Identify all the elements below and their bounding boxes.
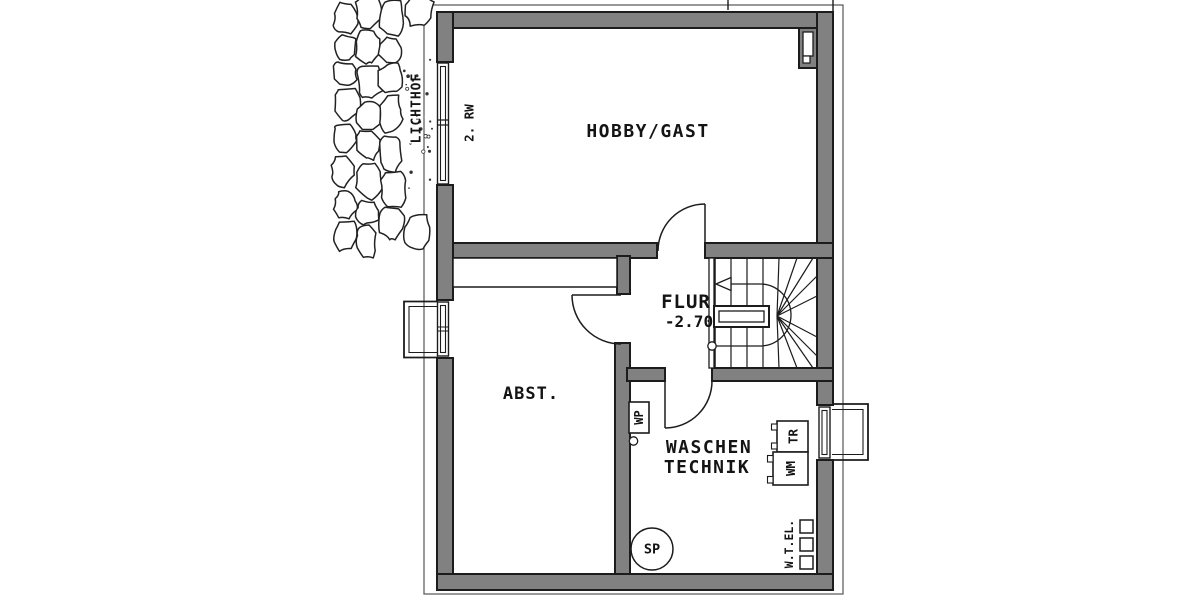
wall-stub-flur [617, 256, 630, 294]
utility-box [800, 556, 813, 569]
window-west [438, 302, 449, 356]
rubble-stone [334, 221, 357, 251]
room-label-abstellraum: ABST. [503, 384, 559, 404]
utility-connections: W.T.EL. [782, 520, 813, 569]
door-swing-arc [665, 381, 712, 428]
window-lichthof [438, 63, 449, 184]
rubble-stone [334, 124, 357, 153]
gravel-dot [431, 128, 433, 130]
rubble-stone [381, 171, 406, 207]
floor-plan-page: WP TR WM SP W.T.EL. HOBBY/GAST FLUR -2. [0, 0, 1200, 600]
staircase [708, 258, 817, 368]
chimney-flue [803, 32, 813, 56]
wall-waschen-north-east [712, 368, 833, 381]
rubble-stone [405, 0, 434, 26]
gravel-dot [426, 62, 430, 66]
wall-west-lower [437, 358, 453, 590]
rubble-stone [378, 37, 401, 63]
door-swing-arc [572, 295, 621, 344]
gravel-dot [425, 178, 428, 181]
gravel-dot [403, 70, 406, 73]
rubble-stone [333, 62, 357, 85]
gravel-dot [405, 84, 407, 86]
wall-west-middle [437, 185, 453, 300]
gravel-dot [422, 150, 425, 153]
rubble-stone [356, 30, 381, 64]
gravel-dot [427, 160, 430, 163]
exterior-walls [437, 12, 833, 590]
dryer: TR [772, 421, 809, 452]
gravel-dot [409, 171, 412, 174]
floor-plan-drawing: WP TR WM SP W.T.EL. HOBBY/GAST FLUR -2. [0, 0, 1200, 600]
gravel-dot [429, 178, 431, 180]
utility-connections-label: W.T.EL. [782, 520, 796, 568]
room-level-flur: -2.70 [665, 312, 713, 331]
door-abstellraum [572, 295, 621, 344]
door-waschen-technik [665, 381, 712, 428]
light-shaft-east [832, 404, 868, 460]
stair-handrail [714, 306, 769, 327]
walk-line-direction-arrow-icon [716, 278, 731, 291]
gravel-dot [425, 92, 428, 95]
door-swing-arc [658, 204, 705, 251]
rubble-stone [356, 163, 384, 200]
site-boundary-line [424, 5, 843, 594]
window-east [819, 407, 830, 458]
rubble-stone [357, 131, 380, 160]
partition-duct [453, 258, 617, 287]
rubble-stone [380, 136, 402, 172]
door-hobby-gast [658, 204, 705, 251]
fixtures: WP TR WM SP W.T.EL. [629, 402, 813, 570]
rubble-stone [334, 191, 358, 219]
rubble-stone [335, 35, 356, 60]
chimney-vent [803, 56, 810, 63]
washing-machine-label: WM [783, 461, 798, 476]
utility-box [800, 520, 813, 533]
rubble-stone [378, 63, 402, 93]
wall-west-upper [437, 12, 453, 62]
sump-pump: SP [631, 528, 673, 570]
gravel-dot [427, 135, 430, 138]
heat-pump-label: WP [632, 410, 646, 424]
gravel-dot [428, 150, 431, 153]
wall-east-upper [817, 12, 833, 405]
light-shaft-west [404, 302, 438, 358]
gravel-dot [408, 187, 410, 189]
floor-drain-icon [629, 437, 637, 445]
gravel-dot [406, 87, 409, 90]
wall-hobby-south-east [705, 243, 833, 258]
walk-line-start-circle [708, 342, 716, 350]
wall-north [437, 12, 833, 28]
gravel-dot [425, 115, 428, 118]
rubble-stone [355, 0, 381, 29]
dryer-label: TR [785, 429, 800, 445]
light-well-label: LICHTHOF [410, 73, 425, 144]
sump-pump-label: SP [644, 542, 660, 558]
room-label-technik: TECHNIK [664, 457, 750, 478]
wall-east-lower [817, 460, 833, 590]
room-label-flur: FLUR [661, 291, 711, 313]
rubble-stone [333, 2, 358, 34]
room-label-waschen: WASCHEN [666, 437, 752, 458]
wall-south [437, 574, 833, 590]
wall-waschen-north-west [627, 368, 665, 381]
gravel-dot [429, 120, 431, 122]
rubble-stone [380, 95, 403, 133]
rubble-stone [404, 215, 430, 250]
room-label-hobby-gast: HOBBY/GAST [586, 121, 709, 142]
rubble-stone [356, 200, 379, 225]
washing-machine: WM [768, 452, 809, 485]
rubble-stone [379, 0, 403, 36]
rubble-stone [356, 225, 376, 258]
heat-pump: WP [629, 402, 649, 445]
rubble-stone [379, 207, 405, 240]
utility-box [800, 538, 813, 551]
dimension-ticks [728, 0, 833, 12]
gravel-dot [427, 146, 429, 148]
gravel-dot [429, 59, 431, 61]
rubble-stone [331, 156, 354, 188]
escape-window-label: 2. RW [461, 104, 476, 142]
